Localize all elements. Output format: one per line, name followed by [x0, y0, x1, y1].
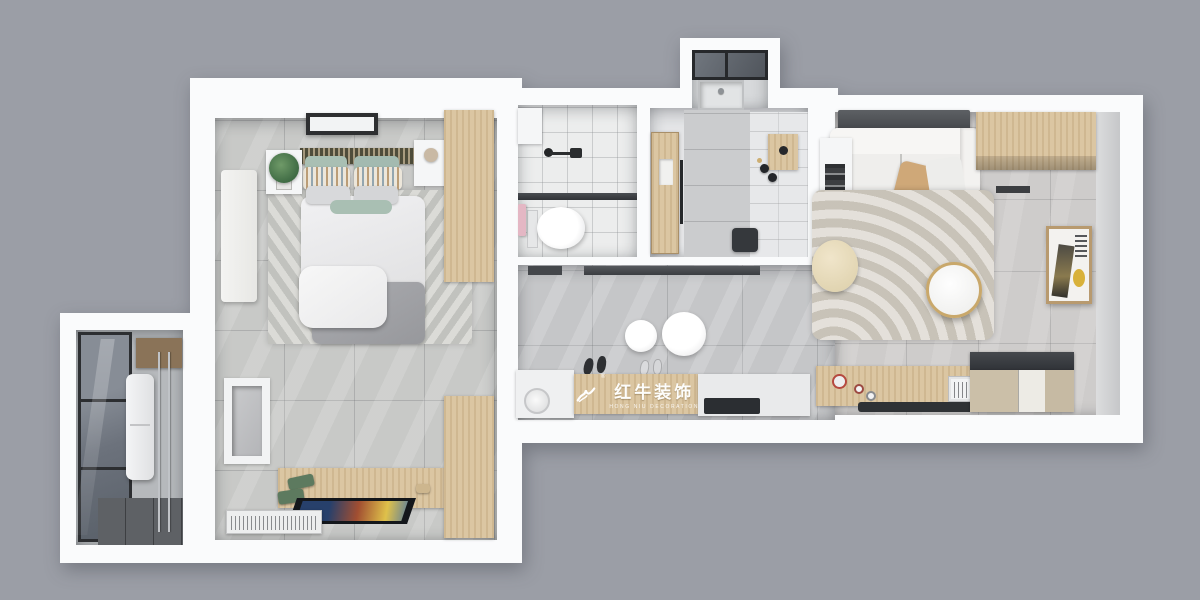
bottle-icon — [768, 173, 777, 182]
wall-towel-icon — [221, 170, 257, 302]
gold-decor-icon — [757, 158, 762, 163]
drying-pole-icon — [158, 352, 160, 532]
utility-sink-icon — [698, 80, 744, 110]
kettle-icon — [832, 374, 847, 389]
kitchen-sink-icon — [524, 388, 550, 414]
artwork-figure — [1051, 244, 1074, 298]
watermark-text: 红牛装饰 HONG NIU DECORATION — [609, 378, 699, 410]
sideboard-icon — [970, 370, 1074, 412]
drying-pole-icon — [168, 352, 170, 532]
pendant-lamp-icon — [662, 312, 706, 356]
glazing-bar — [725, 53, 728, 77]
wall-artwork-icon — [1046, 226, 1092, 304]
cooktop-icon — [704, 398, 760, 414]
pendant-lamp-icon — [625, 320, 657, 352]
cabinet-shadow-edge — [976, 156, 1096, 170]
water-heater-icon — [126, 374, 154, 480]
potted-plant-icon — [269, 153, 299, 183]
shower-head-icon — [570, 148, 582, 158]
alcove-glazing-icon — [692, 50, 768, 80]
door-inset-panel — [659, 159, 673, 185]
watermark-subtitle: HONG NIU DECORATION — [609, 404, 699, 410]
floor-plan-render: ® 红牛装饰 HONG NIU DECORATION — [0, 0, 1200, 600]
bottle-icon — [760, 164, 769, 173]
corner-cabinet-icon — [976, 112, 1096, 170]
toilet-icon — [537, 207, 585, 249]
balcony-dark-tiles — [98, 498, 183, 545]
floor-vent-icon — [996, 186, 1030, 193]
lower-wardrobe-icon — [444, 396, 494, 538]
bath-wall-cabinet-icon — [518, 108, 542, 144]
watermark-brand: 红牛装饰 — [614, 378, 694, 403]
wardrobe-icon — [444, 110, 494, 282]
sideboard-top-icon — [970, 352, 1074, 370]
bed-tray-icon — [299, 266, 387, 328]
heater-seam — [130, 424, 150, 426]
kitchen-window-strip-icon — [584, 266, 760, 275]
wall-niche-icon — [224, 378, 270, 464]
artwork-gold-accent — [1073, 269, 1085, 287]
bull-swoosh-logo-icon — [575, 383, 597, 405]
watermark: ® 红牛装饰 HONG NIU DECORATION — [574, 372, 700, 416]
niche-recess — [232, 386, 262, 456]
door-handle-icon — [680, 160, 683, 224]
sofa-back — [830, 128, 980, 154]
round-coffee-table-icon — [926, 262, 982, 318]
faucet-icon — [718, 88, 724, 94]
ac-grille — [231, 516, 317, 530]
stand-knob-icon — [779, 146, 788, 155]
shower-glass-partition-icon — [518, 193, 637, 200]
ceiling-light-icon — [306, 113, 378, 135]
living-right-wall-face — [1096, 112, 1120, 415]
waste-bin-icon — [732, 228, 758, 252]
pouf-icon — [812, 240, 858, 292]
cup-icon — [866, 391, 876, 401]
wood-door-icon — [651, 132, 679, 254]
dining-bench-icon — [858, 402, 988, 412]
sideboard-seam — [1018, 370, 1019, 412]
artwork-caption-lines — [1075, 235, 1087, 257]
kitchen-window-strip-icon — [528, 266, 562, 275]
nightstand-decor-icon — [424, 148, 438, 162]
nightstand-right-icon — [414, 140, 448, 186]
cup-icon — [854, 384, 864, 394]
registered-mark: ® — [601, 374, 605, 380]
cabinet-handle-icon — [416, 484, 430, 493]
ac-unit-icon — [226, 510, 322, 534]
lumbar-pillow-icon — [330, 200, 392, 214]
pink-towel-icon — [518, 204, 526, 236]
